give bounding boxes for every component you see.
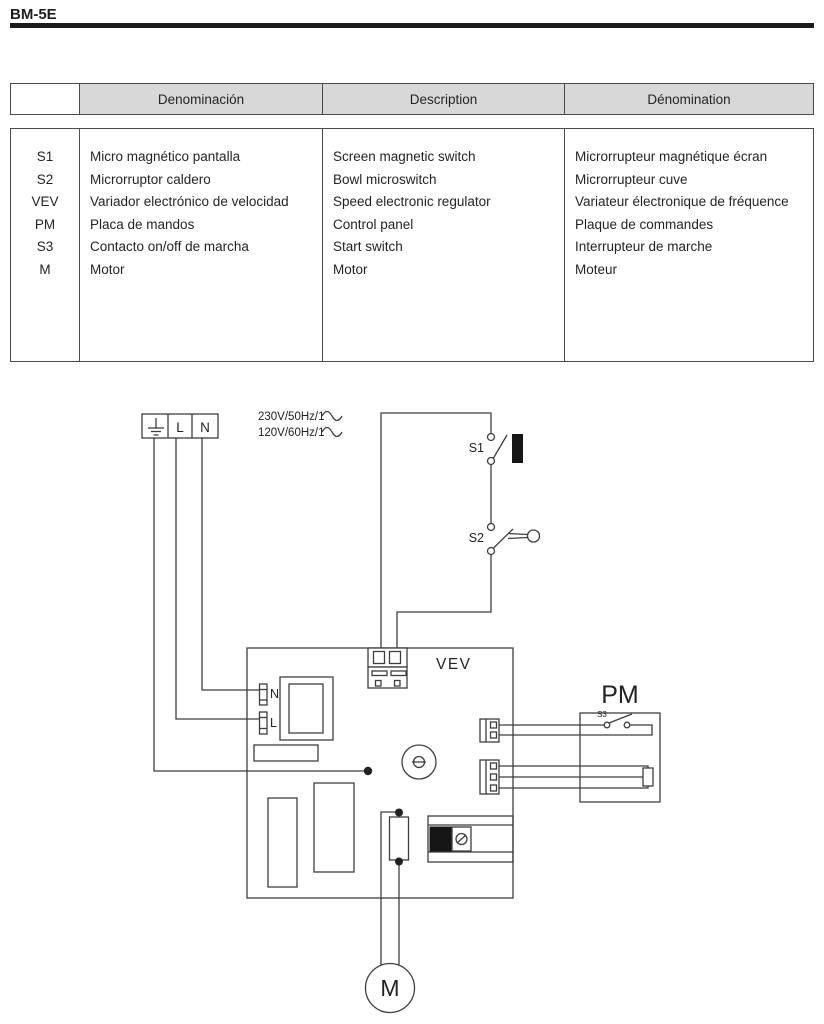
motor-label: M bbox=[380, 975, 399, 1001]
mains-live-label: L bbox=[176, 420, 184, 435]
component-block-1 bbox=[268, 798, 297, 887]
pm-potentiometer bbox=[643, 768, 653, 786]
wiring-diagram: L N 230V/50Hz/1 120V/60Hz/1 S1 S2 bbox=[0, 0, 824, 1024]
vev-neutral-label: N bbox=[270, 687, 279, 701]
s2-return-wire bbox=[397, 555, 491, 649]
s1-magnet-bar bbox=[512, 434, 523, 463]
vev-live-terminal: L bbox=[260, 712, 278, 734]
vev-neutral-terminal: N bbox=[260, 684, 280, 705]
component-block-2 bbox=[314, 783, 354, 872]
ground-junction-dot bbox=[364, 767, 372, 775]
supply-line2-label: 120V/60Hz/1 bbox=[258, 427, 325, 439]
connector-3pin bbox=[480, 760, 499, 794]
neutral-wire bbox=[202, 438, 260, 690]
pm-title: PM bbox=[601, 681, 639, 709]
heatsink-module bbox=[428, 816, 513, 862]
vev-title: VEV bbox=[436, 656, 472, 673]
motor-symbol: M bbox=[366, 964, 415, 1013]
connector-2pin bbox=[480, 719, 499, 742]
vev-input-connector bbox=[368, 648, 407, 688]
transformer-block bbox=[280, 677, 333, 740]
mains-terminal-block: L N bbox=[142, 414, 218, 438]
vev-board: VEV N L bbox=[247, 648, 513, 898]
trim-potentiometer bbox=[402, 745, 436, 779]
component-block-horizontal bbox=[254, 745, 318, 761]
manual-page: BM-5E Denominación Description Dénominat… bbox=[0, 0, 824, 1024]
mains-neutral-label: N bbox=[200, 420, 210, 435]
s1-label: S1 bbox=[469, 441, 484, 455]
s2-label: S2 bbox=[469, 531, 484, 545]
supply-line1-label: 230V/50Hz/1 bbox=[258, 411, 325, 423]
switch-s2: S2 bbox=[469, 524, 540, 555]
ac-sine-icon bbox=[322, 428, 342, 437]
pm-wire-3 bbox=[497, 766, 649, 769]
pm-panel: PM S3 bbox=[580, 681, 660, 802]
ac-sine-icon bbox=[322, 412, 342, 421]
vev-live-label: L bbox=[270, 716, 277, 730]
supply-voltage-labels: 230V/50Hz/1 120V/60Hz/1 bbox=[258, 411, 342, 439]
pm-wire-5 bbox=[497, 786, 649, 789]
switch-s1: S1 bbox=[469, 434, 523, 465]
s3-label: S3 bbox=[597, 710, 607, 719]
s2-roller bbox=[528, 530, 540, 542]
capacitor bbox=[390, 809, 409, 866]
